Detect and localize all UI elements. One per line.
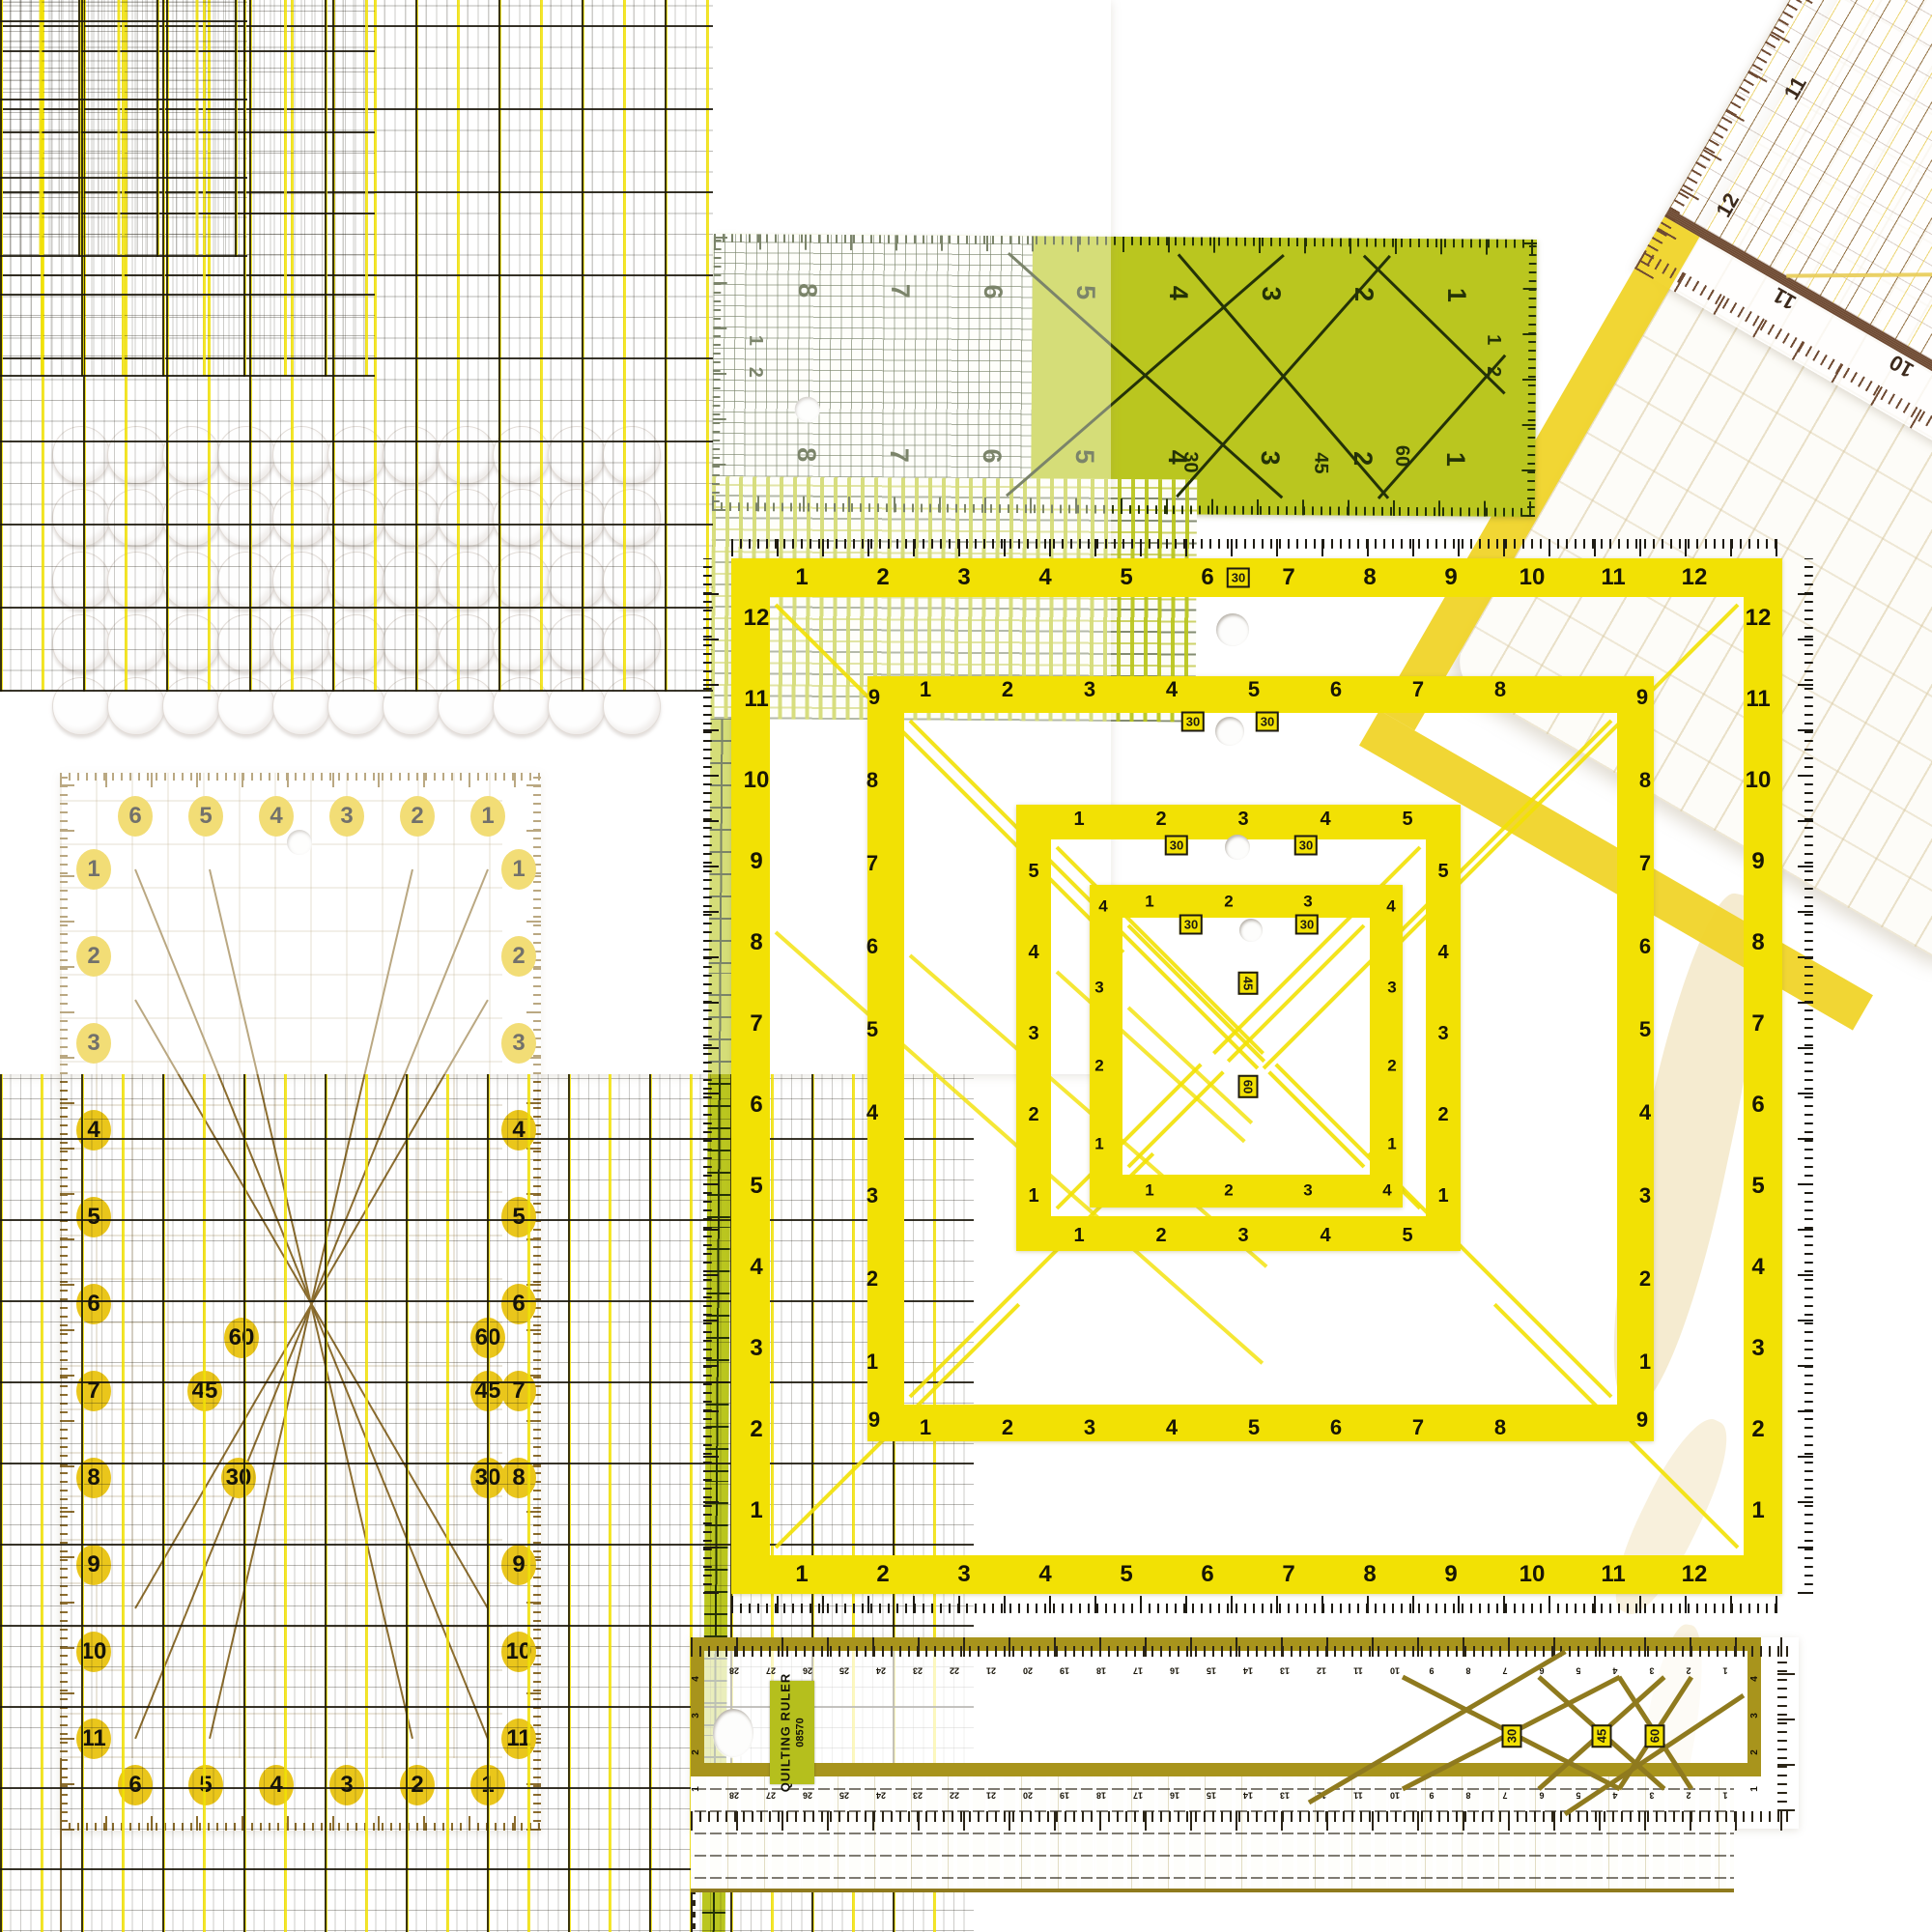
band-number-bottom: 1 xyxy=(795,1563,808,1586)
band-number-left: 2 xyxy=(1094,1058,1103,1074)
narrow-band-number-top: 4 xyxy=(1612,1666,1617,1675)
band-number-bottom: 5 xyxy=(1402,1226,1412,1245)
band-corner-number: 9 xyxy=(868,1409,880,1431)
band-number-right: 2 xyxy=(1437,1105,1448,1124)
narrow-band-number-top: 25 xyxy=(839,1666,849,1675)
band-number-right: 4 xyxy=(1437,943,1448,962)
band-corner-number: 9 xyxy=(1636,687,1648,708)
band-number-left: 8 xyxy=(867,770,878,791)
inch-line xyxy=(691,1890,1734,1892)
band-number-top: 8 xyxy=(1363,566,1376,589)
band-number-right: 3 xyxy=(1751,1337,1764,1360)
narrow-band-number-bottom: 2 xyxy=(1686,1791,1690,1800)
band-number-left: 3 xyxy=(867,1185,878,1207)
square-ruler-bottom-ticks xyxy=(731,1596,1782,1613)
band-number-bottom: 5 xyxy=(1120,1563,1132,1586)
band-number-right: 10 xyxy=(1746,769,1772,792)
band-number-right: 3 xyxy=(1639,1185,1651,1207)
narrow-band-number-top: 12 xyxy=(1317,1666,1326,1675)
band-number-top: 3 xyxy=(1303,894,1312,910)
band-number-left: 8 xyxy=(750,931,762,954)
band-number-left: 1 xyxy=(750,1499,762,1522)
band-number-top: 11 xyxy=(1601,566,1625,589)
band-number-bottom: 2 xyxy=(876,1563,889,1586)
band-number-top: 5 xyxy=(1120,566,1132,589)
band-number-top: 1 xyxy=(795,566,808,589)
band-number-right: 7 xyxy=(1751,1012,1764,1036)
narrow-band-number-top: 5 xyxy=(1576,1666,1580,1675)
square-angle-box: 30 xyxy=(1294,836,1318,856)
narrow-band-number-bottom: 15 xyxy=(1207,1791,1216,1800)
narrow-band-number-bottom: 25 xyxy=(839,1791,849,1800)
square-angle-box: 30 xyxy=(1181,712,1205,732)
square-angle-box: 30 xyxy=(1179,915,1203,935)
square-angle-box: 30 xyxy=(1256,712,1279,732)
band-number-right: 9 xyxy=(1751,850,1764,873)
band-number-top: 5 xyxy=(1402,810,1412,829)
narrow-end-number-left: 4 xyxy=(692,1676,701,1682)
narrow-band-number-top: 22 xyxy=(950,1666,959,1675)
green-number-top: 2 xyxy=(1350,287,1377,301)
band-number-left: 1 xyxy=(1094,1136,1103,1152)
narrow-end-number-right: 1 xyxy=(1750,1786,1760,1792)
narrow-band-number-bottom: 5 xyxy=(1576,1791,1580,1800)
square-ruler-right-ticks xyxy=(1798,558,1813,1594)
narrow-band-number-bottom: 21 xyxy=(986,1791,996,1800)
narrow-band-number-top: 28 xyxy=(729,1666,739,1675)
square-angle-box: 30 xyxy=(1295,915,1319,935)
band-number-bottom: 12 xyxy=(1682,1563,1708,1586)
band-corner-number: 9 xyxy=(868,687,880,708)
band-number-bottom: 7 xyxy=(1412,1417,1424,1438)
band-number-bottom: 4 xyxy=(1320,1226,1330,1245)
band-number-bottom: 8 xyxy=(1494,1417,1506,1438)
narrow-band-number-bottom: 27 xyxy=(766,1791,776,1800)
band-number-left: 5 xyxy=(867,1019,878,1040)
band-number-top: 10 xyxy=(1520,566,1546,589)
band-corner-number: 4 xyxy=(1386,898,1395,915)
square-angle-box: 30 xyxy=(1227,568,1250,588)
square-ruler-top-ticks xyxy=(731,539,1782,556)
narrow-band-number-top: 27 xyxy=(766,1666,776,1675)
narrow-right-ticks xyxy=(1777,1657,1795,1811)
narrow-band-number-bottom: 23 xyxy=(913,1791,923,1800)
narrow-angle-60: 60 xyxy=(1645,1724,1665,1747)
band-number-left: 2 xyxy=(867,1268,878,1290)
band-number-left: 3 xyxy=(1094,980,1103,996)
narrow-end-number-left: 2 xyxy=(692,1749,701,1755)
band-number-left: 1 xyxy=(1028,1186,1038,1206)
band-number-top: 1 xyxy=(1145,894,1153,910)
narrow-band-number-bottom: 10 xyxy=(1390,1791,1400,1800)
green-right-ticks xyxy=(1521,240,1537,517)
narrow-band-number-bottom: 13 xyxy=(1280,1791,1290,1800)
band-number-top: 1 xyxy=(920,679,931,700)
band-number-bottom: 11 xyxy=(1601,1563,1625,1586)
band-number-top: 4 xyxy=(1038,566,1051,589)
narrow-band-number-top: 20 xyxy=(1023,1666,1033,1675)
narrow-end-number-left: 3 xyxy=(692,1713,701,1719)
narrow-band-number-bottom: 4 xyxy=(1612,1791,1617,1800)
narrow-band-number-bottom: 14 xyxy=(1243,1791,1253,1800)
band-number-bottom: 1 xyxy=(920,1417,931,1438)
band-number-left: 3 xyxy=(1028,1024,1038,1043)
band-number-bottom: 1 xyxy=(1073,1226,1084,1245)
band-number-right: 7 xyxy=(1639,853,1651,874)
band-number-left: 9 xyxy=(750,850,762,873)
narrow-band-number-top: 7 xyxy=(1502,1666,1507,1675)
band-number-right: 2 xyxy=(1639,1268,1651,1290)
band-number-bottom: 5 xyxy=(1248,1417,1260,1438)
narrow-quilting-ruler: QUILTING RULER 08570 2828272726262525242… xyxy=(691,1637,1799,1829)
narrow-band-number-top: 2 xyxy=(1686,1666,1690,1675)
band-number-left: 2 xyxy=(1028,1105,1038,1124)
band-number-top: 3 xyxy=(1237,810,1248,829)
band-number-bottom: 7 xyxy=(1282,1563,1294,1586)
narrow-band-number-top: 8 xyxy=(1465,1666,1470,1675)
narrow-band-number-top: 18 xyxy=(1096,1666,1106,1675)
narrow-end-number-left: 1 xyxy=(692,1786,701,1792)
band-number-right: 1 xyxy=(1387,1136,1396,1152)
band-number-bottom: 10 xyxy=(1520,1563,1546,1586)
band-number-left: 2 xyxy=(750,1418,762,1441)
narrow-end-number-right: 3 xyxy=(1750,1713,1760,1719)
narrow-band-number-bottom: 22 xyxy=(950,1791,959,1800)
band-number-bottom: 3 xyxy=(1303,1182,1312,1199)
narrow-angle-30: 30 xyxy=(1502,1724,1522,1747)
band-number-top: 4 xyxy=(1166,679,1178,700)
band-number-left: 4 xyxy=(750,1256,762,1279)
band-number-bottom: 3 xyxy=(957,1563,970,1586)
green-edge-number: 2 xyxy=(1484,366,1503,377)
narrow-band-number-bottom: 16 xyxy=(1170,1791,1179,1800)
green-number-bottom: 2 xyxy=(1350,451,1376,466)
narrow-ruler-hole xyxy=(713,1709,753,1757)
band-number-left: 7 xyxy=(750,1012,762,1036)
band-number-top: 7 xyxy=(1412,679,1424,700)
narrow-band-number-top: 13 xyxy=(1280,1666,1290,1675)
band-number-bottom: 8 xyxy=(1363,1563,1376,1586)
narrow-band-number-bottom: 1 xyxy=(1722,1791,1727,1800)
green-angle-45: 45 xyxy=(1311,452,1330,473)
cm5-line xyxy=(691,1892,696,1932)
band-number-left: 12 xyxy=(744,607,770,630)
green-edge-number: 1 xyxy=(1484,334,1503,345)
green-number-top: 3 xyxy=(1258,286,1284,300)
narrow-band-number-bottom: 26 xyxy=(803,1791,812,1800)
narrow-band-number-top: 21 xyxy=(986,1666,996,1675)
band-number-right: 11 xyxy=(1746,688,1770,711)
band-number-right: 8 xyxy=(1639,770,1651,791)
band-number-right: 5 xyxy=(1437,862,1448,881)
band-number-left: 7 xyxy=(867,853,878,874)
square-angle-box: 30 xyxy=(1165,836,1188,856)
band-number-top: 5 xyxy=(1248,679,1260,700)
narrow-band-number-top: 14 xyxy=(1243,1666,1253,1675)
band-number-top: 2 xyxy=(1155,810,1166,829)
narrow-band-number-top: 24 xyxy=(876,1666,886,1675)
square-ruler-left-ticks xyxy=(703,558,719,1594)
band-number-right: 2 xyxy=(1751,1418,1764,1441)
green-number-bottom: 3 xyxy=(1257,450,1283,465)
band-number-bottom: 2 xyxy=(1224,1182,1233,1199)
narrow-band-number-top: 1 xyxy=(1722,1666,1727,1675)
narrow-end-number-right: 2 xyxy=(1750,1749,1760,1755)
band-number-top: 2 xyxy=(1224,894,1233,910)
narrow-band-number-bottom: 9 xyxy=(1429,1791,1434,1800)
band-number-bottom: 4 xyxy=(1166,1417,1178,1438)
olive-frame xyxy=(691,1637,1761,1776)
band-number-top: 3 xyxy=(957,566,970,589)
band-number-bottom: 1 xyxy=(1145,1182,1153,1199)
band-number-bottom: 4 xyxy=(1038,1563,1051,1586)
narrow-band-number-bottom: 7 xyxy=(1502,1791,1507,1800)
band-number-right: 2 xyxy=(1387,1058,1396,1074)
narrow-angle-45: 45 xyxy=(1592,1724,1612,1747)
band-number-top: 8 xyxy=(1494,679,1506,700)
band-number-left: 6 xyxy=(750,1094,762,1117)
band-number-top: 2 xyxy=(1002,679,1013,700)
square-ruler-hole xyxy=(1225,835,1250,860)
band-number-right: 3 xyxy=(1437,1024,1448,1043)
narrow-band-number-bottom: 8 xyxy=(1465,1791,1470,1800)
narrow-top-ticks xyxy=(691,1637,1794,1657)
square-angle-box-45: 45 xyxy=(1238,972,1259,995)
product-photo-canvas: 91011121110 87654321876543211122304560 6… xyxy=(0,0,1932,1932)
narrow-band-number-bottom: 11 xyxy=(1353,1791,1363,1800)
square-ruler-hole xyxy=(1239,919,1263,942)
band-number-left: 6 xyxy=(867,936,878,957)
band-number-top: 6 xyxy=(1201,566,1213,589)
band-number-top: 6 xyxy=(1330,679,1342,700)
narrow-band-number-bottom: 28 xyxy=(729,1791,739,1800)
band-corner-number: 4 xyxy=(1098,898,1107,915)
band-number-bottom: 3 xyxy=(1237,1226,1248,1245)
band-number-right: 1 xyxy=(1639,1351,1651,1373)
band-number-left: 1 xyxy=(867,1351,878,1373)
ruler-brand-label: QUILTING RULER 08570 xyxy=(770,1681,814,1784)
band-number-right: 8 xyxy=(1751,931,1764,954)
band-number-top: 3 xyxy=(1084,679,1095,700)
band-number-right: 4 xyxy=(1639,1102,1651,1123)
band-number-left: 4 xyxy=(1028,943,1038,962)
band-number-bottom: 9 xyxy=(1444,1563,1457,1586)
narrow-band-number-bottom: 18 xyxy=(1096,1791,1106,1800)
narrow-band-number-bottom: 17 xyxy=(1133,1791,1143,1800)
narrow-end-number-right: 4 xyxy=(1750,1676,1760,1682)
band-number-top: 1 xyxy=(1073,810,1084,829)
green-number-top: 1 xyxy=(1443,288,1469,302)
band-number-bottom: 6 xyxy=(1330,1417,1342,1438)
band-number-right: 3 xyxy=(1387,980,1396,996)
band-number-right: 1 xyxy=(1437,1186,1448,1206)
green-angle-30: 30 xyxy=(1180,451,1200,472)
narrow-band-number-top: 10 xyxy=(1390,1666,1400,1675)
band-number-right: 4 xyxy=(1751,1256,1764,1279)
narrow-band-number-top: 3 xyxy=(1649,1666,1654,1675)
band-number-left: 3 xyxy=(750,1337,762,1360)
band-number-top: 4 xyxy=(1320,810,1330,829)
green-number-bottom: 1 xyxy=(1442,452,1468,467)
band-number-right: 6 xyxy=(1639,936,1651,957)
narrow-band-number-top: 23 xyxy=(913,1666,923,1675)
narrow-bottom-ticks xyxy=(691,1811,1794,1831)
band-number-left: 5 xyxy=(750,1175,762,1198)
grid-texture xyxy=(0,0,247,257)
narrow-band-number-top: 17 xyxy=(1133,1666,1143,1675)
green-angle-60: 60 xyxy=(1392,445,1411,467)
narrow-band-number-bottom: 24 xyxy=(876,1791,886,1800)
band-number-left: 4 xyxy=(867,1102,878,1123)
band-number-bottom: 3 xyxy=(1084,1417,1095,1438)
band-number-right: 6 xyxy=(1751,1094,1764,1117)
narrow-band-number-bottom: 19 xyxy=(1060,1791,1069,1800)
band-number-bottom: 2 xyxy=(1155,1226,1166,1245)
narrow-band-number-top: 19 xyxy=(1060,1666,1069,1675)
band-number-bottom: 6 xyxy=(1201,1563,1213,1586)
narrow-band-number-top: 11 xyxy=(1353,1666,1363,1675)
square-ruler-hole xyxy=(1215,717,1244,746)
band-number-left: 11 xyxy=(744,688,768,711)
band-number-right: 5 xyxy=(1639,1019,1651,1040)
ruler-model: 08570 xyxy=(795,1718,807,1747)
square-ruler-hole xyxy=(1216,613,1249,646)
green-number-top: 4 xyxy=(1165,286,1191,300)
band-number-left: 10 xyxy=(744,769,770,792)
band-number-right: 5 xyxy=(1751,1175,1764,1198)
square-angle-box-60: 60 xyxy=(1238,1075,1259,1098)
band-number-top: 2 xyxy=(876,566,889,589)
narrow-band-number-bottom: 3 xyxy=(1649,1791,1654,1800)
ruler-title: QUILTING RULER xyxy=(779,1673,793,1793)
narrow-band-number-top: 26 xyxy=(803,1666,812,1675)
band-number-bottom: 2 xyxy=(1002,1417,1013,1438)
narrow-band-number-bottom: 20 xyxy=(1023,1791,1033,1800)
narrow-band-number-top: 16 xyxy=(1170,1666,1179,1675)
band-corner-number: 9 xyxy=(1636,1409,1648,1431)
narrow-band-number-top: 9 xyxy=(1429,1666,1434,1675)
band-number-left: 5 xyxy=(1028,862,1038,881)
narrow-band-number-bottom: 6 xyxy=(1539,1791,1544,1800)
band-number-right: 12 xyxy=(1746,607,1772,630)
band-number-top: 9 xyxy=(1444,566,1457,589)
band-number-top: 12 xyxy=(1682,566,1708,589)
band-number-right: 1 xyxy=(1751,1499,1764,1522)
narrow-band-number-top: 15 xyxy=(1207,1666,1216,1675)
band-number-top: 7 xyxy=(1282,566,1294,589)
band-number-bottom: 4 xyxy=(1382,1182,1391,1199)
